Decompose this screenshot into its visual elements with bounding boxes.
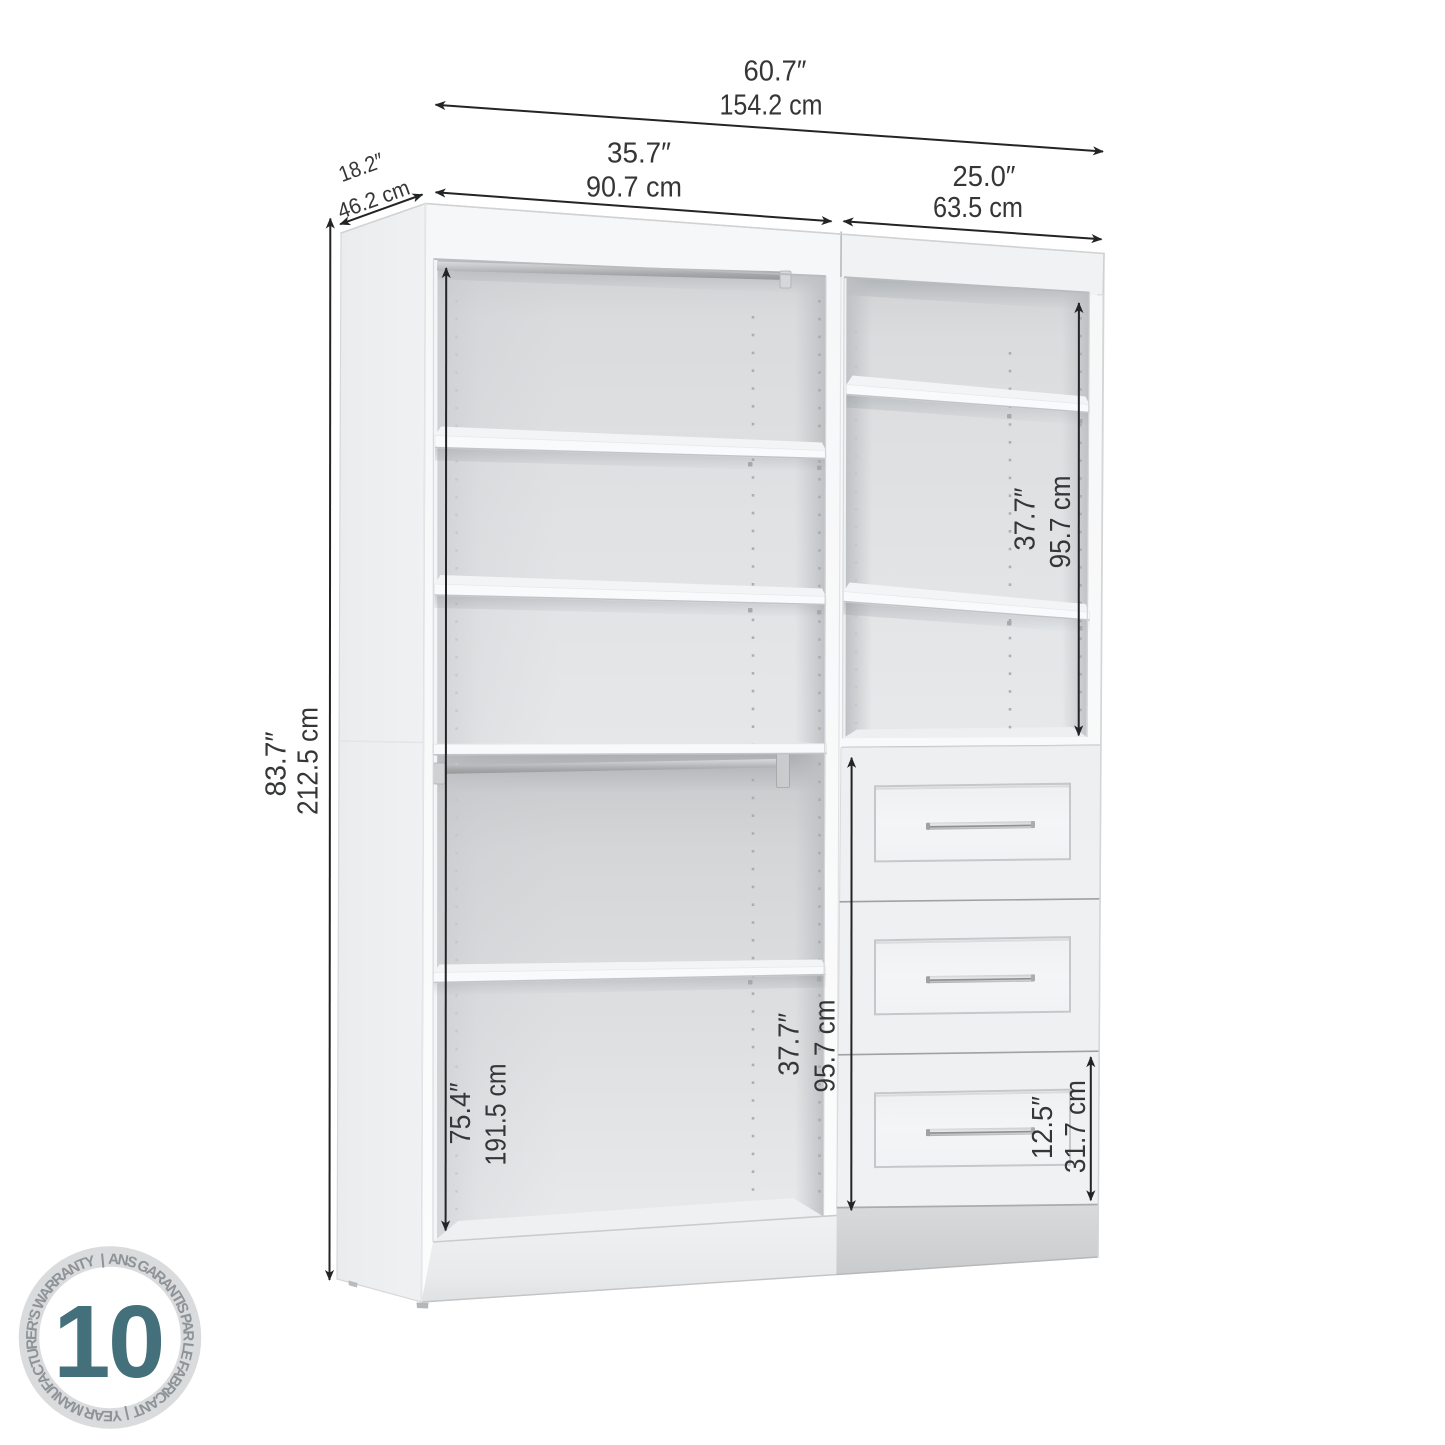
- svg-text:37.7″: 37.7″: [1010, 488, 1042, 551]
- svg-text:191.5 cm: 191.5 cm: [481, 1064, 513, 1166]
- svg-text:90.7 cm: 90.7 cm: [586, 172, 682, 204]
- svg-text:37.7″: 37.7″: [774, 1013, 806, 1076]
- svg-text:95.7 cm: 95.7 cm: [1045, 475, 1077, 568]
- svg-text:12.5″: 12.5″: [1027, 1096, 1059, 1159]
- svg-text:95.7 cm: 95.7 cm: [809, 1000, 841, 1093]
- svg-text:35.7″: 35.7″: [607, 138, 671, 170]
- svg-text:10: 10: [53, 1284, 163, 1399]
- svg-text:31.7 cm: 31.7 cm: [1060, 1080, 1092, 1173]
- svg-text:75.4″: 75.4″: [445, 1083, 477, 1145]
- svg-text:60.7″: 60.7″: [744, 56, 807, 88]
- svg-text:154.2 cm: 154.2 cm: [720, 90, 823, 122]
- svg-text:63.5 cm: 63.5 cm: [933, 192, 1023, 224]
- svg-text:25.0″: 25.0″: [953, 161, 1016, 193]
- svg-text:83.7″: 83.7″: [261, 732, 293, 797]
- svg-text:212.5 cm: 212.5 cm: [293, 707, 325, 815]
